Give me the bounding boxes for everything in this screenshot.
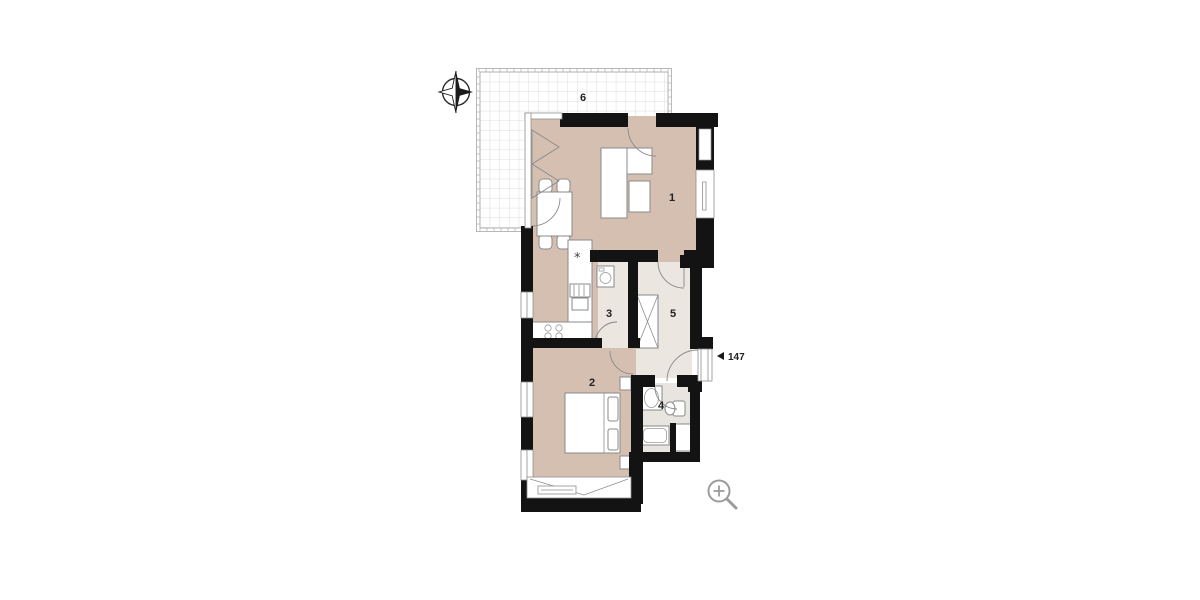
nightstand (620, 377, 631, 390)
room-label-terrace: 6 (580, 92, 586, 104)
shower (674, 424, 691, 451)
room-label-bedroom: 2 (589, 377, 595, 389)
entrance-number: 147 (728, 352, 745, 363)
pillow (608, 429, 618, 450)
glass-wall (525, 113, 531, 228)
washing-machine (597, 266, 614, 287)
wall-niche (699, 129, 711, 160)
entrance-arrow-icon (717, 352, 724, 360)
entrance-door (698, 349, 712, 381)
bathtub (641, 426, 669, 445)
wardrobe (637, 295, 658, 348)
room-label-bathroom: 4 (658, 400, 665, 412)
floorplan-canvas: * (0, 0, 1200, 600)
bay-window (527, 477, 631, 498)
floorplan-page: * (0, 0, 1200, 600)
kitchen-symbol: * (574, 251, 581, 266)
room-label-hallway: 5 (670, 308, 676, 320)
bed (565, 393, 620, 453)
pillow (608, 397, 618, 421)
entrance-marker: 147 (717, 352, 745, 363)
compass-icon (439, 71, 473, 113)
zoom-in-icon[interactable] (709, 481, 737, 509)
room-label-storage: 3 (606, 308, 612, 320)
kitchen-sink (572, 298, 588, 310)
coffee-table (629, 181, 650, 212)
room-label-living: 1 (669, 192, 675, 204)
